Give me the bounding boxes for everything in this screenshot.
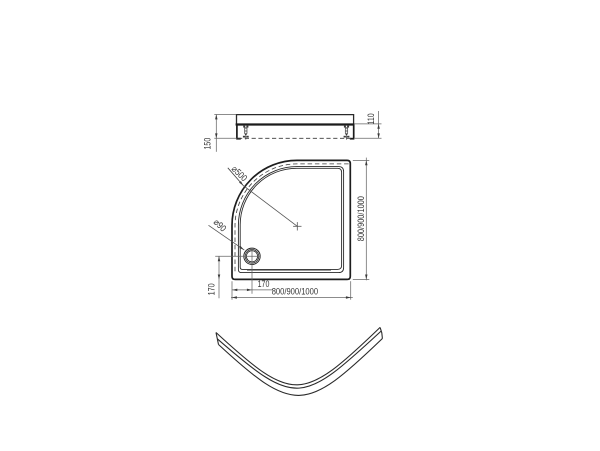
svg-text:150: 150 [203, 138, 213, 150]
svg-text:110: 110 [366, 113, 376, 124]
svg-text:170: 170 [207, 283, 217, 295]
svg-text:170: 170 [258, 279, 270, 289]
svg-text:800/900/1000: 800/900/1000 [272, 287, 318, 297]
svg-text:800/900/1000: 800/900/1000 [356, 196, 366, 241]
